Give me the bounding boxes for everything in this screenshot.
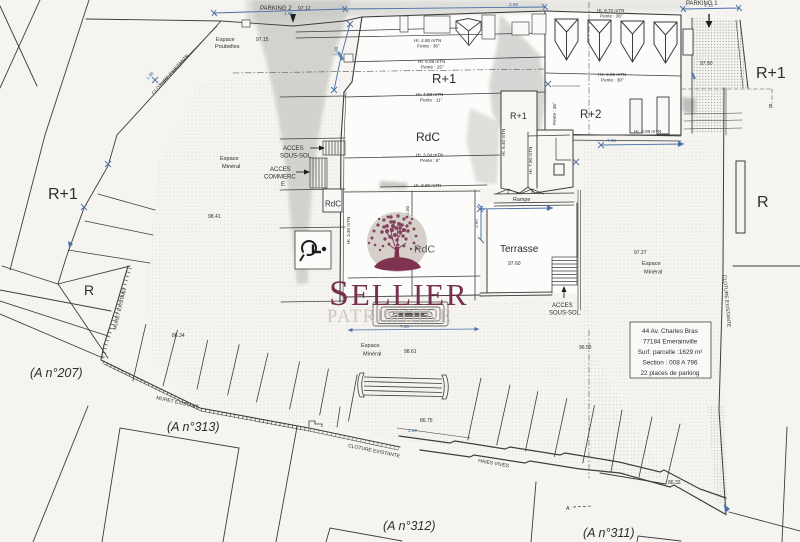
svg-text:ACCES: ACCES <box>270 167 291 173</box>
svg-text:COMMERC: COMMERC <box>264 175 296 181</box>
svg-text:Espace: Espace <box>361 343 380 349</box>
svg-text:7.88: 7.88 <box>607 138 616 143</box>
svg-text:SOUS-SOL: SOUS-SOL <box>280 154 312 160</box>
svg-text:RdC: RdC <box>416 130 440 144</box>
svg-text:Minéral: Minéral <box>363 352 381 358</box>
svg-text:98.61: 98.61 <box>404 349 417 355</box>
svg-text:Pente : 30°: Pente : 30° <box>601 78 624 83</box>
svg-text:Ht. 5.09 mTN: Ht. 5.09 mTN <box>418 59 445 64</box>
svg-text:Poubelles: Poubelles <box>215 44 240 50</box>
svg-text:44 Av. Charles Bras: 44 Av. Charles Bras <box>642 328 698 335</box>
svg-text:Pente : 25°: Pente : 25° <box>421 65 444 70</box>
svg-text:Ht. 4.80 mTN: Ht. 4.80 mTN <box>414 38 441 43</box>
svg-text:Espace: Espace <box>216 37 235 43</box>
svg-text:SOUS-SOL: SOUS-SOL <box>549 311 581 317</box>
svg-text:Pente : 6°: Pente : 6° <box>420 158 440 163</box>
svg-text:Section : 008 A 796: Section : 008 A 796 <box>642 360 698 367</box>
svg-text:97.60: 97.60 <box>508 261 521 267</box>
svg-text:(A n°313): (A n°313) <box>167 420 219 434</box>
svg-text:Ht. 3.09 mTN: Ht. 3.09 mTN <box>634 129 661 134</box>
svg-text:R+1: R+1 <box>48 186 78 203</box>
svg-text:R+1: R+1 <box>510 111 527 121</box>
svg-text:Pente : 36°: Pente : 36° <box>417 44 440 49</box>
svg-text:ACCES: ACCES <box>552 303 573 309</box>
svg-text:(A n°207): (A n°207) <box>30 366 82 380</box>
svg-text:Pente : 11°: Pente : 11° <box>420 98 443 103</box>
svg-text:77184 Emerainville: 77184 Emerainville <box>643 339 698 346</box>
svg-text:Terrasse: Terrasse <box>500 244 539 255</box>
svg-text:3.60: 3.60 <box>474 219 479 228</box>
svg-text:Ht. 9.70 mTN: Ht. 9.70 mTN <box>597 8 624 13</box>
svg-text:R+1: R+1 <box>756 65 786 82</box>
svg-text:R+1: R+1 <box>432 71 456 86</box>
svg-text:Surf. parcelle :1629 m²: Surf. parcelle :1629 m² <box>638 349 703 356</box>
svg-text:E: E <box>281 182 285 188</box>
svg-text:Minéral: Minéral <box>222 164 240 170</box>
svg-text:Rampe: Rampe <box>513 197 530 203</box>
svg-text:Ht. 3.04 mTN: Ht. 3.04 mTN <box>416 153 443 158</box>
svg-text:ACCES: ACCES <box>283 146 304 152</box>
svg-text:R+2: R+2 <box>580 109 601 121</box>
svg-text:86.33: 86.33 <box>668 480 681 486</box>
svg-text:Hs. 9.05 mTN: Hs. 9.05 mTN <box>598 72 626 77</box>
svg-text:Ht. 4.88 mTN: Ht. 4.88 mTN <box>416 92 443 97</box>
svg-text:Ht. 7.90 mTN: Ht. 7.90 mTN <box>528 147 533 174</box>
svg-text:PARKING 1: PARKING 1 <box>686 1 718 7</box>
svg-text:Ht. 3.30 mTN: Ht. 3.30 mTN <box>346 217 351 244</box>
svg-text:Pente : 36°: Pente : 36° <box>552 102 557 125</box>
svg-text:Pente : 36°: Pente : 36° <box>600 14 623 19</box>
svg-text:B: B <box>769 104 773 110</box>
svg-text:86.75: 86.75 <box>420 418 433 424</box>
svg-text:Espace: Espace <box>642 261 661 267</box>
svg-text:98.41: 98.41 <box>208 214 221 220</box>
svg-text:97.27: 97.27 <box>634 250 647 256</box>
svg-text:Minéral: Minéral <box>644 270 662 276</box>
svg-text:Espace: Espace <box>220 156 239 162</box>
svg-text:97.80: 97.80 <box>700 61 713 67</box>
svg-text:RdC: RdC <box>325 200 341 209</box>
svg-text:97.15: 97.15 <box>256 37 269 43</box>
svg-text:R: R <box>84 282 94 298</box>
svg-text:A: A <box>566 506 570 512</box>
svg-text:96.52: 96.52 <box>579 345 592 351</box>
svg-text:Ht. 6.40 mTN: Ht. 6.40 mTN <box>501 129 506 156</box>
svg-text:2.98: 2.98 <box>509 2 518 7</box>
svg-text:(A n°312): (A n°312) <box>383 519 435 533</box>
svg-text:RdC: RdC <box>414 244 435 256</box>
svg-text:22 places de parking: 22 places de parking <box>641 370 700 377</box>
svg-text:97.12: 97.12 <box>298 6 311 12</box>
svg-text:2.08: 2.08 <box>408 428 417 433</box>
svg-text:86.34: 86.34 <box>172 333 185 339</box>
svg-text:Ht. 8.80 mTN: Ht. 8.80 mTN <box>414 183 441 188</box>
svg-text:PARKING 2: PARKING 2 <box>260 6 292 12</box>
svg-text:(A n°311): (A n°311) <box>583 526 635 540</box>
svg-text:PATRIMOINE: PATRIMOINE <box>327 307 452 327</box>
svg-text:R: R <box>757 194 769 211</box>
